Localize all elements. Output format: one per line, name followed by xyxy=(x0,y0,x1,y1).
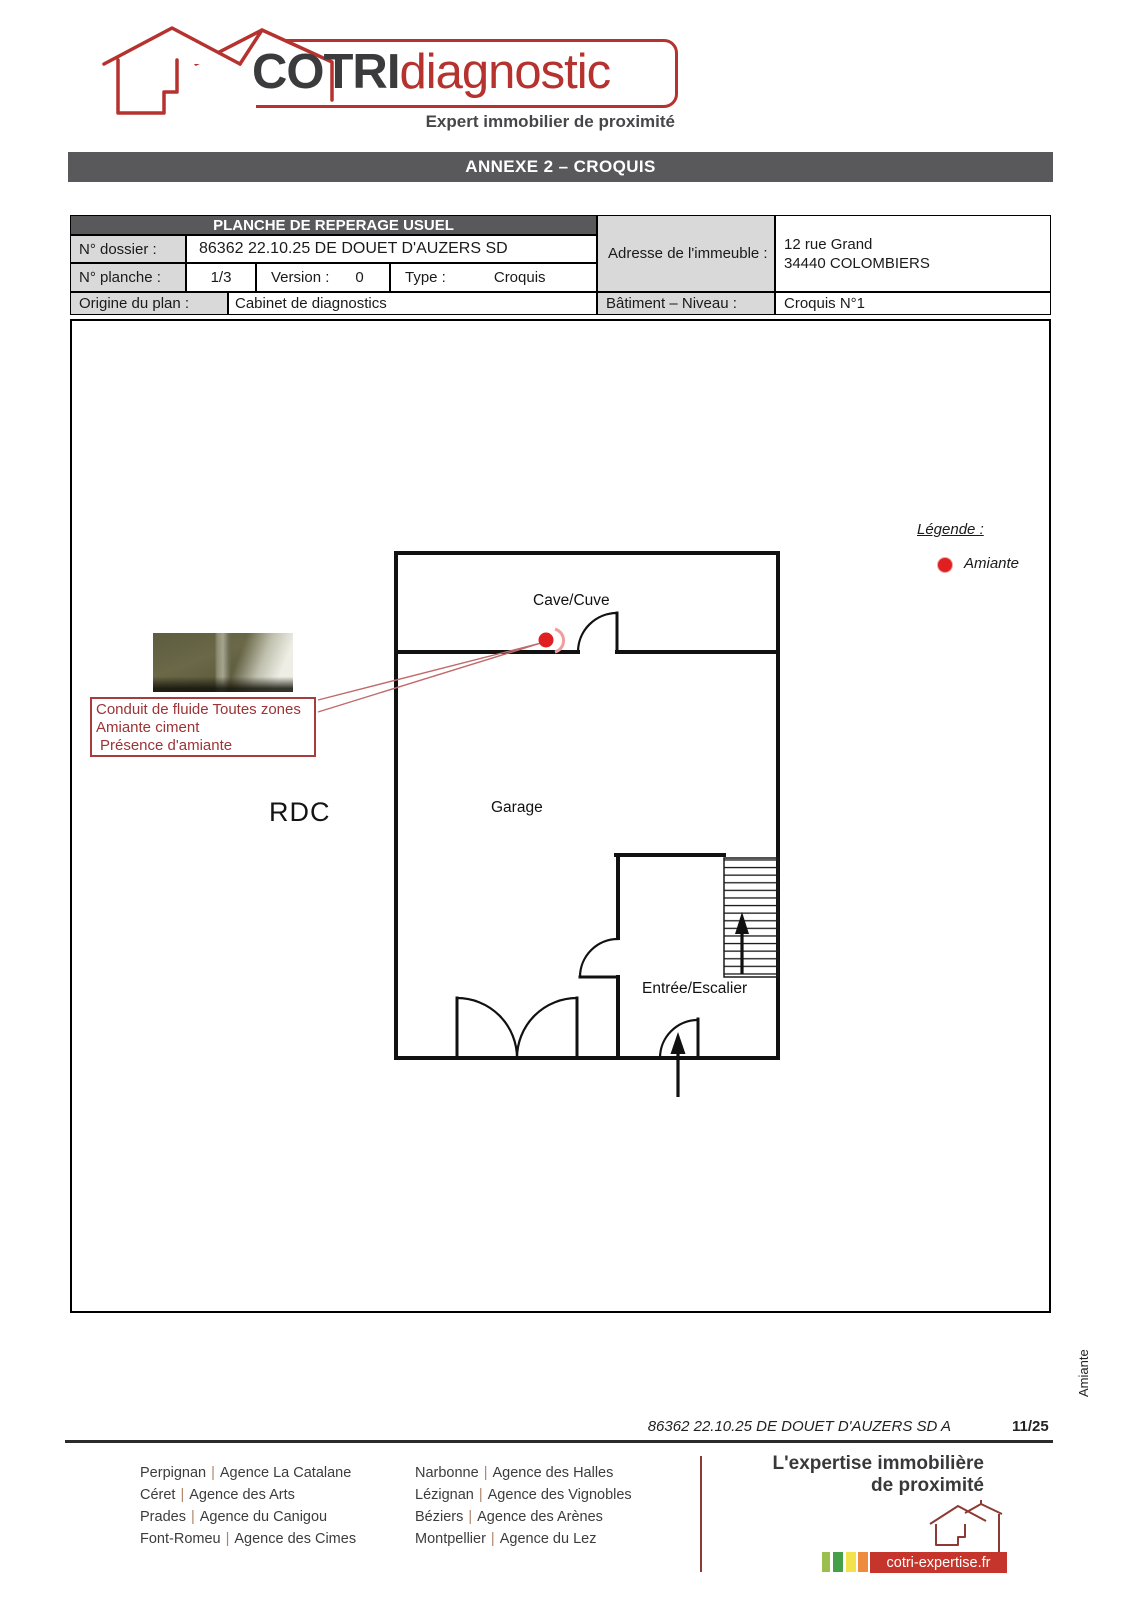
separator: | xyxy=(206,1465,220,1481)
agency-row: Céret|Agence des Arts xyxy=(140,1484,356,1506)
logo-brand-light: diagnostic xyxy=(399,45,610,99)
planche-value: 1/3 xyxy=(186,263,256,292)
energy-bar-icon xyxy=(846,1552,856,1572)
agency-list-middle: Narbonne|Agence des Halles Lézignan|Agen… xyxy=(415,1462,632,1550)
agency-row: Font-Romeu|Agence des Cimes xyxy=(140,1528,356,1550)
separator: | xyxy=(186,1509,200,1525)
separator: | xyxy=(221,1531,235,1547)
version-value: 0 xyxy=(355,269,363,286)
annotation-line2: Amiante ciment xyxy=(96,719,310,737)
website-badge: cotri-expertise.fr xyxy=(870,1552,1007,1573)
agency-name: Agence du Lez xyxy=(500,1531,597,1547)
energy-bar-icon xyxy=(833,1552,843,1572)
agency-row: Narbonne|Agence des Halles xyxy=(415,1462,632,1484)
adresse-line1: 12 rue Grand xyxy=(784,236,872,253)
dossier-value: 86362 22.10.25 DE DOUET D'AUZERS SD xyxy=(186,235,597,263)
floor-label-rdc: RDC xyxy=(269,797,331,828)
annotation-line3: Présence d'amiante xyxy=(96,737,310,755)
separator: | xyxy=(479,1465,493,1481)
annotation-line1: Conduit de fluide Toutes zones xyxy=(96,701,310,719)
footer-tagline-line1: L'expertise immobilière xyxy=(748,1453,984,1475)
logo-tagline: Expert immobilier de proximité xyxy=(400,112,675,132)
agency-name: Agence des Vignobles xyxy=(488,1487,632,1503)
agency-city: Perpignan xyxy=(140,1465,206,1481)
footer-vertical-divider xyxy=(700,1456,702,1572)
footer-tagline: L'expertise immobilière de proximité xyxy=(748,1453,984,1496)
agency-name: Agence des Halles xyxy=(492,1465,613,1481)
table-header: PLANCHE DE REPERAGE USUEL xyxy=(70,215,597,235)
document-reference: 86362 22.10.25 DE DOUET D'AUZERS SD A xyxy=(600,1418,951,1435)
batiment-value: Croquis N°1 xyxy=(775,292,1051,315)
type-label: Type : xyxy=(405,269,446,286)
separator: | xyxy=(463,1509,477,1525)
room-label-cave: Cave/Cuve xyxy=(533,592,610,610)
energy-bar-icon xyxy=(822,1552,830,1572)
agency-city: Céret xyxy=(140,1487,175,1503)
agency-name: Agence des Arts xyxy=(189,1487,295,1503)
agency-name: Agence des Arènes xyxy=(477,1509,603,1525)
agency-name: Agence La Catalane xyxy=(220,1465,351,1481)
footer-tagline-line2: de proximité xyxy=(748,1475,984,1497)
agency-name: Agence du Canigou xyxy=(200,1509,327,1525)
legend-title: Légende : xyxy=(917,521,984,538)
agency-city: Montpellier xyxy=(415,1531,486,1547)
agency-city: Narbonne xyxy=(415,1465,479,1481)
origine-value: Cabinet de diagnostics xyxy=(228,292,597,315)
type-cell: Type :Croquis xyxy=(390,263,597,292)
planche-label: N° planche : xyxy=(70,263,186,292)
agency-city: Béziers xyxy=(415,1509,463,1525)
agency-city: Font-Romeu xyxy=(140,1531,221,1547)
origine-label: Origine du plan : xyxy=(70,292,228,315)
energy-bar-icon xyxy=(858,1552,868,1572)
agency-row: Prades|Agence du Canigou xyxy=(140,1506,356,1528)
agency-name: Agence des Cimes xyxy=(234,1531,356,1547)
legend-item-amiante: Amiante xyxy=(964,555,1019,572)
agency-row: Lézignan|Agence des Vignobles xyxy=(415,1484,632,1506)
room-label-garage: Garage xyxy=(491,799,543,817)
inspection-photo xyxy=(153,633,293,692)
footer-divider-rule xyxy=(65,1440,1053,1443)
annexe-banner: ANNEXE 2 – CROQUIS xyxy=(68,152,1053,182)
agency-row: Montpellier|Agence du Lez xyxy=(415,1528,632,1550)
version-cell: Version :0 xyxy=(256,263,390,292)
side-label-amiante: Amiante xyxy=(1076,1335,1091,1397)
adresse-line2: 34440 COLOMBIERS xyxy=(784,255,930,272)
logo-brand-bold: COTRI xyxy=(252,45,399,99)
adresse-label: Adresse de l'immeuble : xyxy=(597,215,775,292)
batiment-label: Bâtiment – Niveau : xyxy=(597,292,775,315)
page-number: 11/25 xyxy=(1012,1418,1049,1435)
footer-house-icon xyxy=(930,1500,1002,1552)
separator: | xyxy=(486,1531,500,1547)
agency-row: Perpignan|Agence La Catalane xyxy=(140,1462,356,1484)
agency-row: Béziers|Agence des Arènes xyxy=(415,1506,632,1528)
document-page: COTRIdiagnostic Expert immobilier de pro… xyxy=(0,0,1131,1600)
amiante-annotation-box: Conduit de fluide Toutes zones Amiante c… xyxy=(90,697,316,757)
agency-city: Lézignan xyxy=(415,1487,474,1503)
separator: | xyxy=(175,1487,189,1503)
agency-list-left: Perpignan|Agence La Catalane Céret|Agenc… xyxy=(140,1462,356,1550)
agency-city: Prades xyxy=(140,1509,186,1525)
separator: | xyxy=(474,1487,488,1503)
amiante-marker-icon xyxy=(938,558,952,572)
logo-wordmark: COTRIdiagnostic xyxy=(252,44,610,106)
croquis-frame xyxy=(70,319,1051,1313)
adresse-value: 12 rue Grand 34440 COLOMBIERS xyxy=(775,215,1051,292)
type-value: Croquis xyxy=(494,269,546,286)
dossier-label: N° dossier : xyxy=(70,235,186,263)
room-label-entree: Entrée/Escalier xyxy=(642,980,747,998)
version-label: Version : xyxy=(271,269,329,286)
